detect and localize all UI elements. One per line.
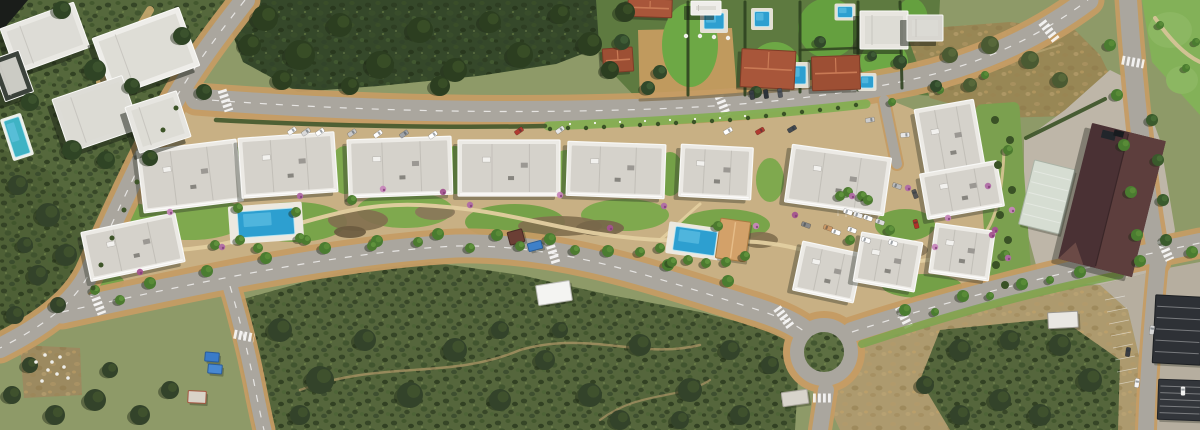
shape: [373, 156, 381, 161]
parked-car: [1181, 386, 1186, 395]
scrub-canopy-left-highlight: [16, 177, 26, 187]
street-tree-highlight: [549, 234, 555, 240]
pool-area-tree-highlight: [671, 258, 676, 263]
dirtlot-car-dots: [684, 34, 688, 38]
shape: [412, 161, 419, 166]
villa-pool-5: [835, 4, 856, 21]
street-tree-highlight: [1136, 230, 1142, 236]
scrub-canopy-left-highlight: [56, 299, 64, 307]
scrub-canopy-left-highlight: [23, 239, 31, 247]
villa-tile-roof-1: [736, 48, 796, 92]
street-tree-highlight: [376, 236, 382, 242]
scrub-canopy-highlight: [498, 391, 509, 402]
shape: [399, 175, 405, 179]
shape: [627, 165, 634, 170]
flowering-shrub: [792, 212, 798, 218]
flowering-shrub-core: [610, 228, 612, 230]
apartment-block-6: [673, 144, 753, 204]
apartment-block-3: [342, 136, 453, 202]
villa-garden-tree-east-highlight: [935, 81, 941, 87]
diagonal-road-bushes: [91, 286, 96, 291]
car-windshield: [1181, 389, 1184, 391]
woodland-canopy-highlight: [297, 43, 312, 58]
scrub-canopy-lot-highlight: [968, 80, 975, 87]
garden-tree-highlight: [469, 244, 474, 249]
scrub-canopy-left-highlight: [138, 407, 148, 417]
shape: [591, 159, 599, 164]
scrub-canopy-highlight: [363, 331, 374, 342]
street-tree-small-highlight: [989, 293, 993, 297]
scrub-canopy-left-highlight: [168, 383, 177, 392]
scrub-canopy-br-highlight: [1087, 371, 1099, 383]
scrub-canopy-br-highlight: [1058, 336, 1069, 347]
verge-bush-row: [584, 126, 588, 130]
scrub-canopy-left-highlight: [45, 206, 57, 218]
garden-tree-highlight: [1007, 146, 1012, 151]
blue-tarp-1: [204, 352, 221, 365]
shape: [615, 178, 621, 182]
villa-garden-tree-west-highlight: [93, 61, 104, 72]
aerial-photo-canvas: [0, 0, 1200, 430]
scrub-canopy-br-highlight: [998, 391, 1009, 402]
garden-tree-highlight: [659, 244, 664, 249]
flowering-shrub-core: [852, 196, 854, 198]
shape: [208, 364, 223, 374]
roof-hip: [617, 50, 618, 60]
garden-tree-highlight: [725, 258, 730, 263]
garden-tree-highlight: [639, 248, 644, 253]
flowering-shrub: [607, 225, 613, 231]
car-windshield: [905, 133, 907, 137]
street-tree-highlight: [962, 291, 968, 297]
street-tree-highlight: [265, 253, 271, 259]
villa-garden-tree-east-highlight: [620, 36, 628, 44]
big-lot-tree-row-highlight: [1157, 155, 1163, 161]
villa-garden-tree-west-highlight: [130, 80, 138, 88]
villa-garden-tree-west-highlight: [104, 153, 113, 162]
bollard-row: [569, 123, 571, 125]
flowering-shrub: [219, 244, 225, 250]
villa-garden-tree-east-highlight: [819, 37, 825, 43]
shape: [683, 148, 749, 195]
verge-bush-row: [674, 121, 678, 125]
flowering-shrub: [297, 193, 303, 199]
woodland-canopy-highlight: [248, 36, 259, 47]
shape: [756, 13, 764, 21]
dirtlot-car-dots: [712, 35, 716, 39]
flowering-shrub: [753, 223, 759, 229]
villa-garden-tree-west-highlight: [202, 86, 210, 94]
pool-area-tree-highlight: [239, 236, 244, 241]
pool-area-tree-highlight: [295, 208, 300, 213]
junkyard-items: [46, 368, 50, 372]
street-tree-highlight: [1123, 140, 1129, 146]
shape: [940, 183, 949, 189]
hedge-band-bushes: [992, 261, 1000, 269]
garden-tree-highlight: [839, 192, 844, 197]
apartment-block-11: [848, 231, 923, 296]
villa-garden-tree-west-highlight: [28, 95, 37, 104]
parked-car: [1134, 378, 1140, 388]
pool-area-tree-highlight: [237, 204, 242, 209]
villa-garden-tree-east-highlight: [646, 83, 653, 90]
street-tree-highlight: [1130, 187, 1136, 193]
hedge-band-bushes: [994, 161, 1002, 169]
diagonal-road-bushes: [122, 208, 127, 213]
diagonal-road-bushes: [110, 236, 115, 241]
shape: [163, 166, 172, 172]
woodland-canopy-highlight: [608, 63, 617, 72]
garden-tree-highlight: [705, 259, 710, 264]
commercial-solar-building: [1152, 295, 1200, 368]
scene-root: [0, 0, 1200, 430]
flowering-shrub: [849, 193, 855, 199]
shape: [933, 228, 990, 277]
apartment-block-12: [923, 222, 995, 285]
garden-tree-highlight: [849, 236, 854, 241]
diagonal-road-bushes: [148, 153, 153, 158]
flowering-shrub: [467, 202, 473, 208]
verge-bush-row: [782, 112, 786, 116]
parked-car: [1181, 386, 1186, 395]
roundabout-island-texture: [804, 332, 844, 372]
shape: [696, 161, 704, 166]
junkyard-items: [43, 353, 47, 357]
scrub-canopy-highlight: [298, 407, 308, 417]
hedge-band-bushes: [991, 116, 999, 124]
parked-car: [777, 88, 783, 98]
shape: [508, 176, 514, 180]
shape: [462, 144, 556, 192]
street-tree-small-highlight: [1195, 39, 1199, 43]
apartment-block-5: [561, 141, 666, 203]
shape: [931, 128, 940, 134]
verge-bush-row: [818, 108, 822, 112]
villa-tile-roof-2: [807, 55, 860, 94]
villa-garden-tree-east-highlight: [755, 87, 761, 93]
garden-tree-highlight: [519, 242, 524, 247]
verge-bush-row: [764, 114, 768, 118]
woodland-canopy-highlight: [558, 6, 568, 16]
flowering-shrub-core: [443, 192, 445, 194]
bollard-row: [594, 122, 596, 124]
scrub-canopy-lot-highlight: [1028, 53, 1037, 62]
parked-car: [1125, 347, 1131, 357]
parked-car: [1125, 347, 1131, 357]
scrub-canopy-highlight: [738, 407, 748, 417]
scrub-canopy-highlight: [277, 321, 289, 333]
garden-tree-highlight: [257, 244, 262, 249]
pool-area-tree-highlight: [717, 222, 722, 227]
verge-bush-row: [746, 116, 750, 120]
hedge-band-bushes: [996, 211, 1004, 219]
scrub-canopy-left-highlight: [53, 407, 63, 417]
street-tree-small-highlight: [934, 309, 938, 313]
scrub-canopy-highlight: [618, 412, 628, 422]
garden-tree-highlight: [889, 226, 894, 231]
garden-tree-highlight: [371, 242, 376, 247]
parked-car: [749, 90, 755, 100]
street-tree-highlight: [607, 246, 613, 252]
parked-car: [749, 90, 755, 100]
flowering-shrub-core: [948, 218, 950, 220]
woodland-canopy-highlight: [452, 61, 464, 73]
scrub-canopy-left-highlight: [93, 391, 104, 402]
planting-bed: [334, 226, 366, 238]
scrub-canopy-highlight: [587, 386, 599, 398]
junkyard-items: [34, 360, 38, 364]
woodland-canopy-highlight: [587, 35, 599, 47]
verge-bush-row: [656, 122, 660, 126]
shape: [298, 158, 305, 163]
flowering-shrub: [989, 232, 995, 238]
scrub-canopy-br-highlight: [923, 378, 932, 387]
shape: [242, 136, 333, 194]
villa-garden-tree-east-highlight: [871, 52, 876, 57]
woodland-canopy-highlight: [348, 79, 357, 88]
parked-car: [763, 89, 769, 99]
flowering-shrub-core: [908, 188, 910, 190]
flowering-shrub: [137, 269, 143, 275]
white-hut-dirtlot: [1048, 311, 1081, 331]
shape: [188, 391, 207, 404]
big-lot-tree-row-highlight: [1165, 235, 1171, 241]
flowering-shrub-core: [756, 226, 758, 228]
flowering-shrub-core: [222, 247, 224, 249]
flowering-shrub: [905, 185, 911, 191]
flowering-shrub-core: [170, 212, 172, 214]
scrub-canopy-left-highlight: [13, 308, 22, 317]
scrub-canopy-lot-highlight: [988, 38, 997, 47]
woodland-canopy-highlight: [438, 78, 448, 88]
street-tree-highlight: [324, 243, 330, 249]
shape: [521, 163, 528, 168]
woodland-canopy-highlight: [280, 72, 290, 82]
shape: [723, 167, 730, 172]
street-tree-highlight: [904, 305, 910, 311]
woodland-canopy-highlight: [337, 16, 349, 28]
hedge-band-bushes: [1001, 281, 1009, 289]
flowering-shrub-core: [935, 247, 937, 249]
scrub-canopy-highlight: [317, 369, 331, 383]
verge-bush-row: [692, 120, 696, 124]
shape: [813, 165, 822, 171]
scrub-canopy-highlight: [728, 342, 738, 352]
garden-tree-highlight: [744, 252, 749, 257]
flowering-shrub-core: [988, 186, 990, 188]
shape: [781, 389, 809, 406]
hedge-band-bushes: [1004, 236, 1012, 244]
shape: [262, 155, 270, 161]
street-tree-small-highlight: [891, 99, 895, 103]
street-tree-highlight: [437, 229, 443, 235]
flowering-shrub: [167, 209, 173, 215]
pool-area-tree-highlight: [299, 234, 304, 239]
hedge-band-bushes: [1006, 136, 1014, 144]
flowering-shrub: [661, 203, 667, 209]
flowering-shrub-core: [1012, 210, 1014, 212]
bollard-row: [744, 115, 746, 117]
villa-pool-2: [751, 8, 773, 30]
verge-bush-row: [548, 127, 552, 131]
flowering-shrub: [945, 215, 951, 221]
scrub-canopy-left-highlight: [10, 388, 19, 397]
villa-garden-tree-east-highlight: [658, 67, 665, 74]
scrub-canopy-highlight: [638, 336, 649, 347]
flowering-shrub: [932, 244, 938, 250]
shape: [871, 249, 880, 255]
shape: [243, 212, 272, 227]
big-lot-tree-row-highlight: [1162, 195, 1168, 201]
scrub-canopy-highlight: [768, 358, 777, 367]
shape: [570, 145, 662, 194]
verge-bush-row: [710, 119, 714, 123]
parked-car: [1134, 378, 1140, 388]
flowering-shrub-core: [995, 230, 997, 232]
junkyard-items: [55, 372, 59, 376]
flowering-shrub: [440, 189, 446, 195]
junkyard-items: [66, 376, 70, 380]
woodland-canopy-highlight: [377, 54, 391, 68]
blue-tarp-2: [207, 364, 224, 377]
garden-tree-highlight: [305, 236, 310, 241]
scrub-canopy-highlight: [678, 413, 687, 422]
garden-tree-highlight: [867, 196, 872, 201]
woodland-canopy-highlight: [623, 4, 633, 14]
shape: [967, 248, 975, 254]
garden-tree-highlight: [214, 241, 219, 246]
bollard-row: [694, 118, 696, 120]
shape: [205, 352, 220, 362]
shape: [862, 77, 869, 83]
parked-car: [1149, 325, 1155, 335]
diagonal-road-bushes: [174, 106, 179, 111]
shape: [865, 16, 903, 44]
scrub-canopy-br-highlight: [958, 341, 969, 352]
shape: [190, 184, 196, 189]
verge-bush-row: [602, 125, 606, 129]
street-tree-highlight: [1021, 279, 1027, 285]
street-tree-highlight: [1116, 90, 1122, 96]
dirtlot-car-dots: [698, 34, 702, 38]
street-tree-highlight: [496, 230, 502, 236]
scrub-canopy-left-highlight: [36, 267, 46, 277]
dirtlot-car-dots: [726, 36, 730, 40]
scrub-canopy-left-highlight: [108, 364, 116, 372]
verge-bush-row: [638, 123, 642, 127]
hedge-band-bushes: [1008, 186, 1016, 194]
shape: [959, 259, 965, 264]
roof-hip: [835, 58, 836, 73]
shape: [946, 240, 955, 246]
garden-tree-highlight: [574, 246, 579, 251]
flowering-shrub: [380, 186, 386, 192]
villa-garden-tree-west-highlight: [180, 29, 189, 38]
street-tree-highlight: [1079, 267, 1085, 273]
verge-bush-row: [800, 110, 804, 114]
flowering-shrub-core: [300, 196, 302, 198]
bollard-row: [719, 117, 721, 119]
verge-bush-row: [620, 124, 624, 128]
scrub-canopy-highlight: [558, 324, 566, 332]
parked-car: [1149, 325, 1155, 335]
scrub-canopy-lot-highlight: [948, 49, 956, 57]
verge-bush-row: [854, 103, 858, 107]
apartment-block-4: [453, 140, 560, 200]
scrub-canopy-lot-highlight: [1058, 74, 1066, 82]
street-tree-highlight: [1139, 256, 1145, 262]
shape: [714, 179, 720, 183]
parked-car: [777, 88, 783, 98]
scrub-canopy-highlight: [407, 385, 420, 398]
apartment-block-2: [233, 132, 338, 203]
woodland-canopy-highlight: [517, 45, 530, 58]
junkyard-items: [40, 379, 44, 383]
flowering-shrub-core: [1008, 258, 1010, 260]
lawn-patch: [756, 158, 784, 202]
shape: [1048, 311, 1079, 329]
flowering-shrub: [1005, 255, 1011, 261]
shape: [288, 173, 294, 177]
flowering-shrub: [985, 183, 991, 189]
flowering-shrub: [557, 192, 563, 198]
scrub-canopy-br-highlight: [958, 407, 968, 417]
bollard-row: [669, 119, 671, 121]
diagonal-road-bushes: [135, 180, 140, 185]
flowering-shrub-core: [470, 205, 472, 207]
diagonal-road-bushes: [99, 263, 104, 268]
shape: [483, 157, 491, 162]
aerial-satellite-view: [0, 0, 1200, 430]
garden-tree-highlight: [847, 188, 852, 193]
verge-bush-row: [566, 126, 570, 130]
parked-car: [763, 89, 769, 99]
flowering-shrub-core: [992, 235, 994, 237]
shape: [201, 168, 209, 174]
street-tree-small-highlight: [984, 72, 988, 76]
street-tree-highlight: [727, 276, 733, 282]
shape: [351, 140, 449, 193]
scrub-canopy-highlight: [452, 341, 464, 353]
junkyard-items: [50, 360, 54, 364]
street-tree-small-highlight: [1159, 22, 1163, 26]
verge-bush-row: [728, 118, 732, 122]
woodland-canopy-highlight: [262, 8, 275, 21]
villa-garden-tree-west-highlight: [70, 142, 80, 152]
parked-car: [900, 132, 910, 137]
garden-tree-highlight: [119, 296, 124, 301]
garden-tree-highlight: [351, 196, 356, 201]
street-tree-small-highlight: [1185, 65, 1189, 69]
flowering-shrub: [1009, 207, 1015, 213]
junkyard-items: [62, 365, 66, 369]
flowering-shrub-core: [140, 272, 142, 274]
street-tree-highlight: [206, 266, 212, 272]
scrub-canopy-left-highlight: [64, 246, 75, 257]
big-lot-tree-row-highlight: [1151, 115, 1157, 121]
commercial-building-2: [1157, 379, 1200, 423]
flowering-shrub-core: [383, 189, 385, 191]
flowering-shrub-core: [560, 195, 562, 197]
street-tree-highlight: [1191, 247, 1197, 253]
villa-garden-tree-west-highlight: [60, 3, 69, 12]
garden-tree-highlight: [687, 256, 692, 261]
shape: [839, 8, 847, 14]
bollard-row: [619, 121, 621, 123]
verge-bush-row: [836, 106, 840, 110]
scrub-canopy-highlight: [543, 352, 553, 362]
flowering-shrub-core: [795, 215, 797, 217]
